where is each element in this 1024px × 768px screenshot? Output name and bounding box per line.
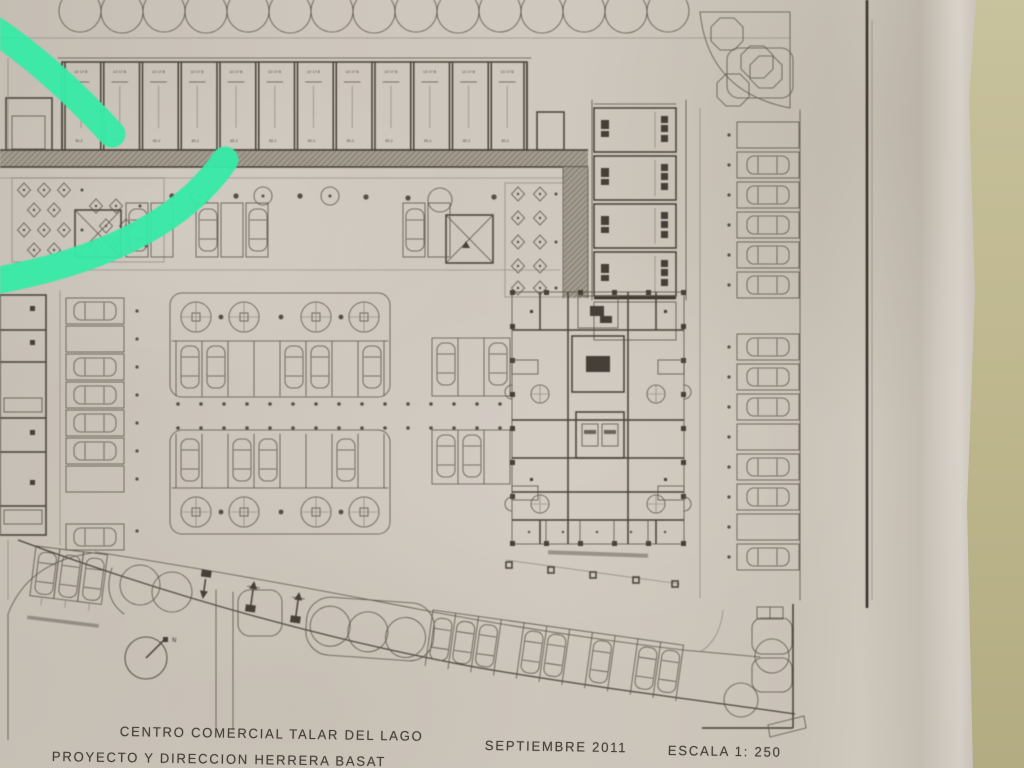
project-title: CENTRO COMERCIAL TALAR DEL LAGO bbox=[120, 724, 424, 744]
title-block: CENTRO COMERCIAL TALAR DEL LAGO PROYECTO… bbox=[0, 0, 1024, 768]
plan-scale: ESCALA 1: 250 bbox=[668, 743, 782, 760]
project-credit: PROYECTO Y DIRECCION HERRERA BASAT bbox=[52, 749, 386, 768]
plan-date: SEPTIEMBRE 2011 bbox=[485, 738, 628, 755]
blueprint-photo: LO 17 B 85.2 bbox=[0, 0, 1024, 768]
